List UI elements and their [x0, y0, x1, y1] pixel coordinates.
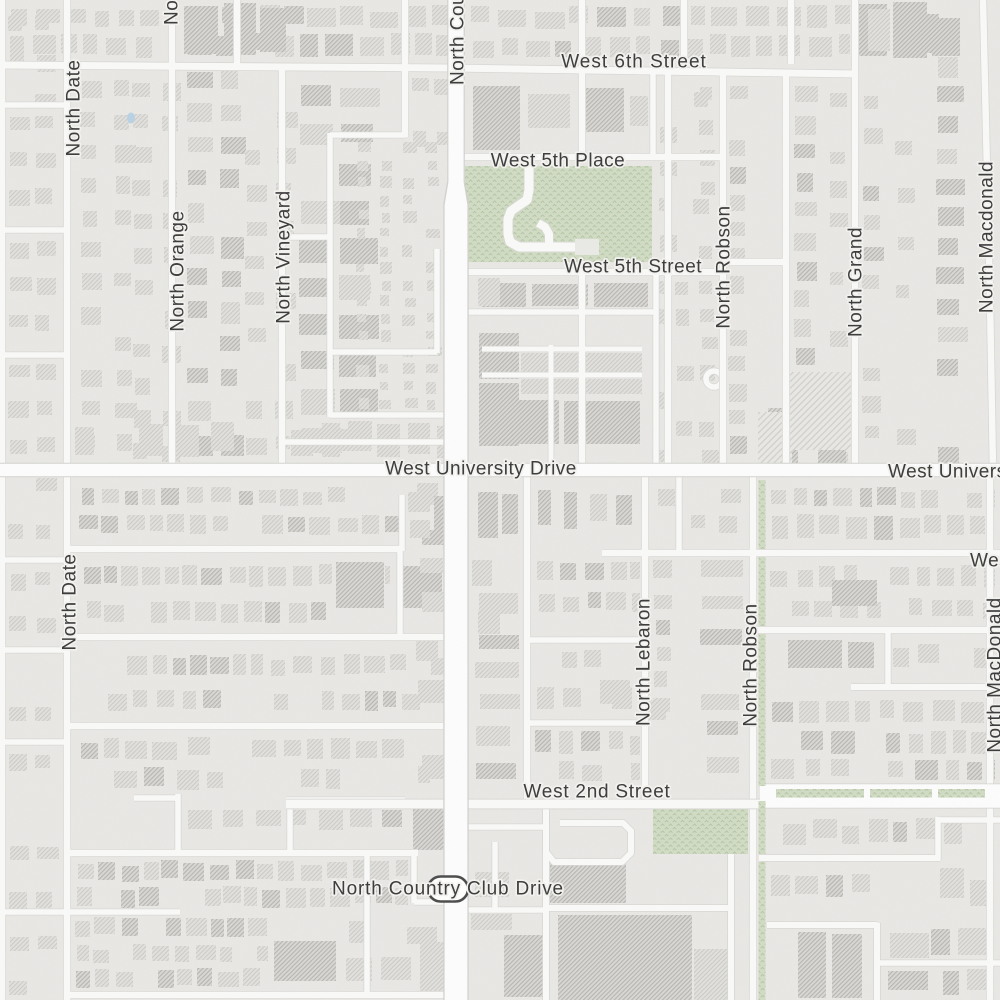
- svg-text:West 1st Street: West 1st Street: [970, 551, 1000, 572]
- svg-text:North Grand: North Grand: [846, 227, 867, 337]
- svg-text:West 5th Place: West 5th Place: [491, 151, 625, 172]
- svg-text:North Country Club Drive: North Country Club Drive: [332, 879, 564, 900]
- svg-text:North Robson: North Robson: [741, 603, 762, 726]
- svg-text:North Orange: North Orange: [168, 210, 189, 331]
- svg-text:North Robson: North Robson: [714, 205, 735, 328]
- svg-text:North Date: North Date: [60, 554, 81, 651]
- svg-text:West University Drive: West University Drive: [385, 459, 577, 480]
- svg-text:North Orange: North Orange: [162, 0, 183, 25]
- svg-text:North Vineyard: North Vineyard: [274, 190, 295, 323]
- svg-text:West 6th Street: West 6th Street: [561, 52, 707, 73]
- svg-text:West 2nd Street: West 2nd Street: [523, 782, 670, 803]
- svg-text:West University Drive: West University Drive: [888, 462, 1000, 483]
- svg-text:North Country Club Drive: North Country Club Drive: [448, 0, 469, 85]
- svg-text:North Lebaron: North Lebaron: [634, 598, 655, 726]
- svg-text:North Macdonald: North Macdonald: [977, 161, 998, 313]
- svg-text:North Date: North Date: [64, 60, 85, 157]
- svg-text:West 5th Street: West 5th Street: [564, 257, 702, 278]
- svg-text:North MacDonald: North MacDonald: [985, 597, 1000, 752]
